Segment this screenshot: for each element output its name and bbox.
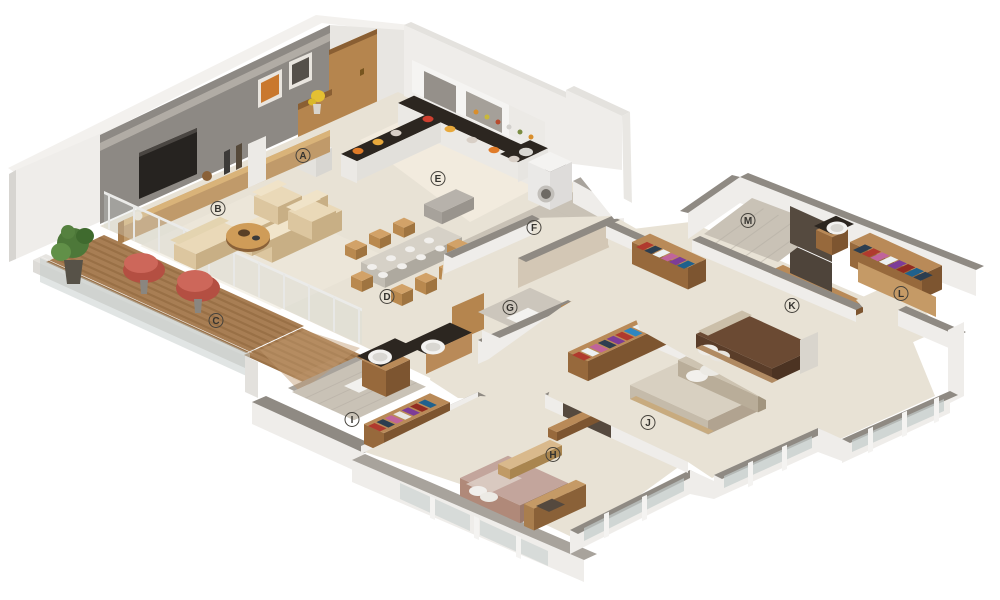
svg-text:B: B (214, 204, 221, 215)
svg-text:F: F (531, 223, 537, 234)
svg-text:C: C (212, 316, 219, 327)
svg-text:G: G (506, 303, 514, 314)
svg-text:L: L (898, 289, 904, 300)
svg-text:K: K (788, 301, 796, 312)
svg-text:J: J (645, 418, 651, 429)
svg-text:D: D (383, 292, 390, 303)
svg-text:M: M (744, 216, 752, 227)
svg-text:I: I (351, 415, 354, 426)
svg-text:A: A (299, 151, 306, 162)
svg-text:E: E (435, 174, 442, 185)
svg-text:H: H (549, 450, 556, 461)
